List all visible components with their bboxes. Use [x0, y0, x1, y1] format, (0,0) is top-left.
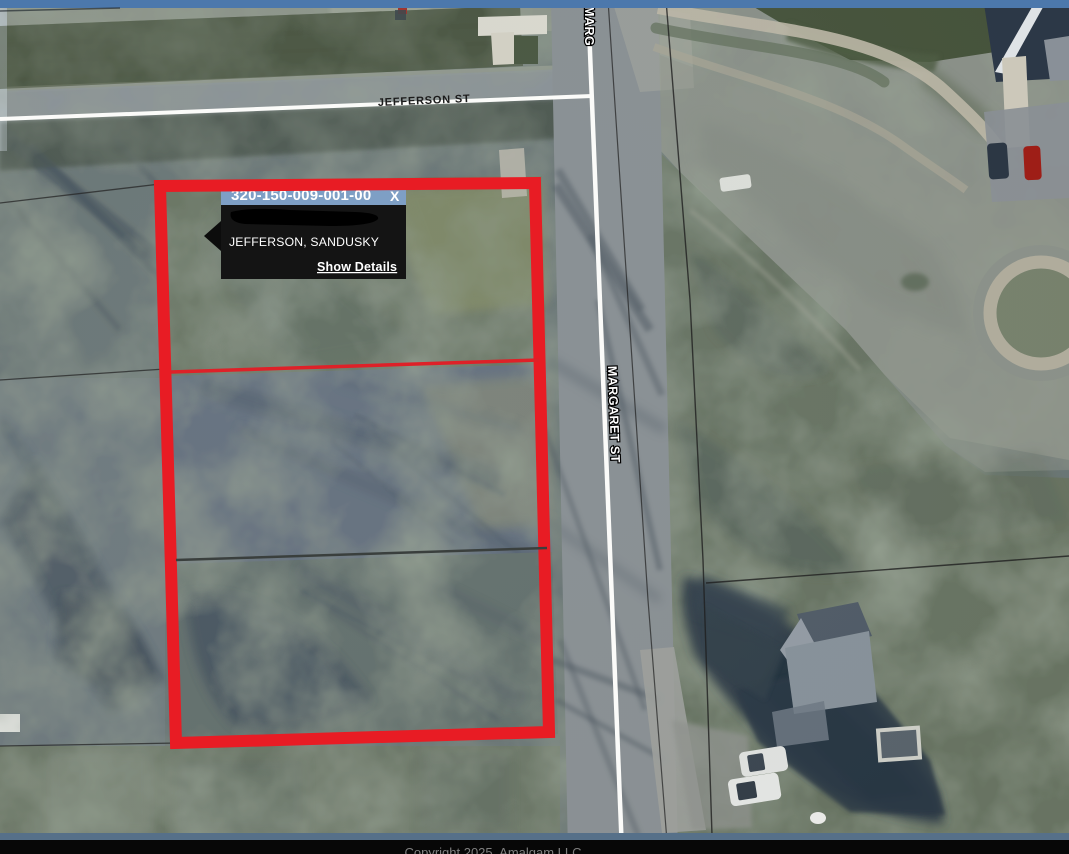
svg-text:Show Details: Show Details	[317, 260, 397, 274]
svg-text:Copyright 2025, Amalgam LLC: Copyright 2025, Amalgam LLC	[404, 845, 581, 854]
svg-text:JEFFERSON, SANDUSKY: JEFFERSON, SANDUSKY	[229, 235, 379, 249]
svg-text:MARG: MARG	[582, 6, 596, 46]
svg-text:X: X	[390, 188, 400, 204]
